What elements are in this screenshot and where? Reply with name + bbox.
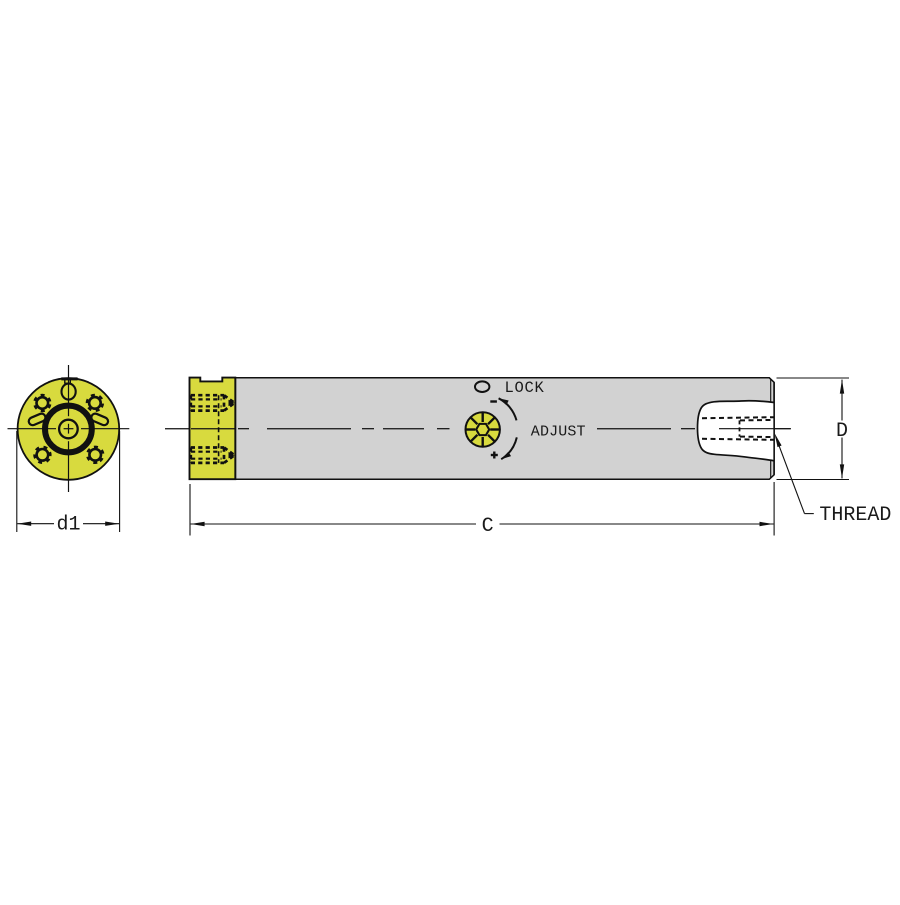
svg-text:C: C (482, 515, 494, 538)
svg-text:THREAD: THREAD (819, 504, 891, 527)
svg-text:d1: d1 (56, 514, 80, 537)
svg-text:ADJUST: ADJUST (531, 423, 586, 440)
svg-text:LOCK: LOCK (505, 379, 545, 397)
